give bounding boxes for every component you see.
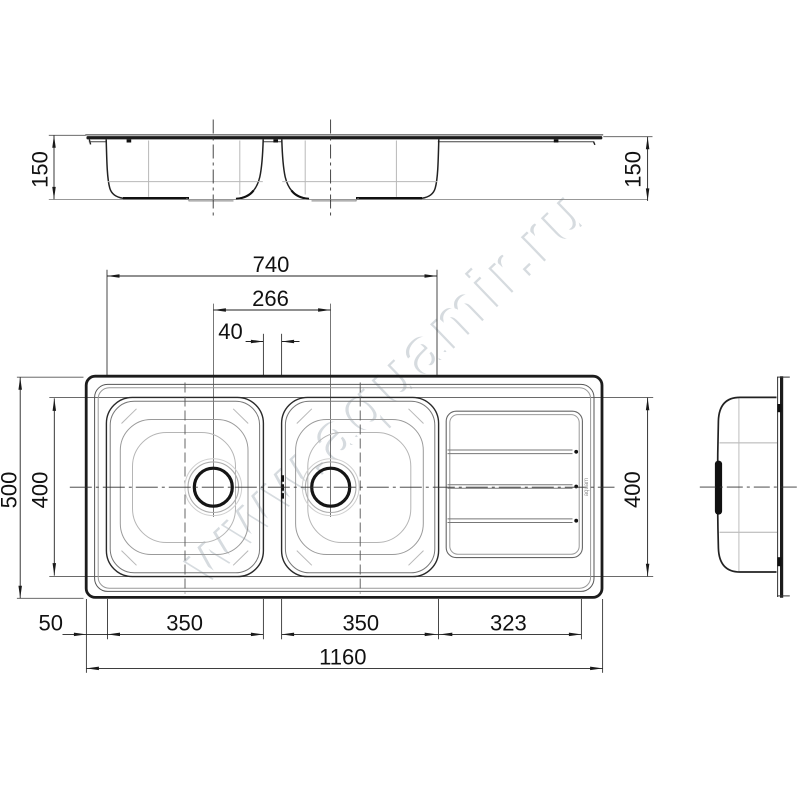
svg-text:350: 350 [166, 610, 203, 635]
svg-text:400: 400 [620, 471, 645, 508]
svg-text:150: 150 [620, 151, 645, 188]
svg-text:aquam: aquam [584, 478, 590, 496]
svg-text:400: 400 [28, 472, 53, 509]
svg-text:1160: 1160 [319, 644, 366, 669]
svg-text:150: 150 [28, 151, 53, 188]
svg-text:350: 350 [342, 610, 379, 635]
svg-text:50: 50 [39, 610, 63, 635]
svg-text:740: 740 [253, 252, 290, 277]
svg-text:266: 266 [252, 286, 289, 311]
svg-text:500: 500 [0, 472, 22, 509]
svg-text:323: 323 [490, 610, 527, 635]
svg-text:40: 40 [218, 319, 242, 344]
